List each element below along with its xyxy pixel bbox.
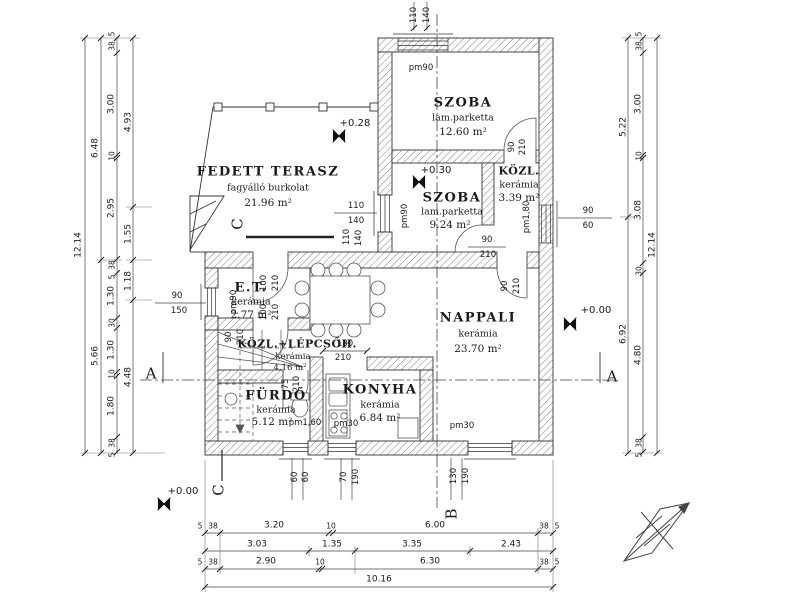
dim-label: 30 bbox=[108, 318, 116, 328]
room-finish: kerámia bbox=[275, 353, 310, 362]
dim-label: 4.80 bbox=[635, 345, 644, 365]
dim-label: 10 bbox=[326, 522, 336, 530]
room-name-nappali: NAPPALI bbox=[440, 312, 516, 325]
window-size-label: 140 bbox=[348, 217, 364, 226]
dim-label: 6.00 bbox=[425, 522, 445, 531]
dim-label: 3.08 bbox=[635, 200, 644, 220]
room-finish: kerámia bbox=[256, 405, 295, 415]
door-size-label: 210 bbox=[480, 251, 496, 260]
door-size-label: 210 bbox=[513, 278, 522, 294]
room-area: 21.96 m² bbox=[244, 198, 292, 209]
room-finish: kerámia bbox=[458, 329, 497, 339]
dim-label: 12.14 bbox=[649, 232, 658, 258]
dim-label: 10 bbox=[635, 151, 643, 161]
parapet-label: pm90 bbox=[230, 290, 239, 315]
dim-label: 4.48 bbox=[125, 367, 134, 387]
parapet-label: pm30 bbox=[334, 420, 359, 429]
door-size-label: 90 bbox=[482, 236, 493, 245]
elevation-label: +0.28 bbox=[340, 119, 371, 129]
benchmark-icon bbox=[557, 311, 582, 336]
section-label-b: B bbox=[445, 508, 460, 519]
dim-label: 10 bbox=[108, 151, 116, 161]
dim-label: 4.93 bbox=[125, 112, 134, 132]
dim-label: 2.95 bbox=[108, 198, 117, 218]
room-name-kozl: KÖZL. bbox=[499, 166, 540, 177]
window-size-label: 190 bbox=[352, 469, 361, 485]
room-finish: kerámia bbox=[499, 180, 538, 190]
room-area: 12.60 m² bbox=[439, 127, 487, 138]
door-size-label: 90 bbox=[508, 142, 517, 153]
dim-label: 6.92 bbox=[620, 324, 629, 344]
dim-label: 5 bbox=[635, 453, 643, 458]
window-size-label: 90 bbox=[172, 292, 183, 301]
room-finish: fagyálló burkolat bbox=[227, 183, 309, 193]
dim-label: 1.55 bbox=[125, 224, 134, 244]
door-size-label: 210 bbox=[293, 376, 302, 392]
room-finish: lam.parketta bbox=[432, 113, 494, 123]
section-label-a: A bbox=[146, 367, 157, 382]
dim-label: 5 bbox=[198, 522, 203, 530]
dim-label: 38 bbox=[108, 438, 116, 448]
elevation-label: +0.00 bbox=[168, 487, 199, 497]
dim-label: 38 bbox=[635, 438, 643, 448]
room-area: 3.39 m² bbox=[499, 193, 540, 204]
window-size-label: 130 bbox=[450, 468, 459, 484]
window-size-label: 60 bbox=[302, 472, 311, 483]
room-name-terasz: FEDETT TERASZ bbox=[197, 166, 340, 179]
dim-label: 5 bbox=[555, 558, 560, 566]
dim-label: 38 bbox=[108, 41, 116, 51]
room-area: 9.24 m² bbox=[430, 220, 471, 231]
dim-label: 2.43 bbox=[501, 541, 521, 550]
door-size-label: 210 bbox=[272, 304, 281, 320]
dim-label: 3.00 bbox=[108, 94, 117, 114]
north-arrow-icon bbox=[624, 503, 689, 561]
door-size-label: 90 bbox=[501, 281, 510, 292]
dim-label: 12.14 bbox=[75, 232, 84, 258]
dim-label: 5.66 bbox=[92, 346, 101, 366]
window-size-label: 150 bbox=[171, 307, 187, 316]
section-label-c: C bbox=[231, 218, 246, 229]
dim-label: 30 bbox=[635, 266, 643, 276]
section-label-c: C bbox=[212, 484, 227, 495]
room-finish: lam.parketta bbox=[421, 207, 483, 217]
window-size-label: 70 bbox=[340, 472, 349, 483]
room-finish: kerámia bbox=[360, 400, 399, 410]
dim-label: 110 bbox=[410, 7, 419, 23]
door-size-label: 75 bbox=[282, 379, 291, 390]
door-size-label: 210 bbox=[519, 139, 528, 155]
room-name-szoba2: SZOBA bbox=[423, 192, 482, 205]
door-size-label: 100 bbox=[260, 304, 269, 320]
dim-label: 5 bbox=[108, 275, 116, 280]
dim-label: 3.35 bbox=[402, 541, 422, 550]
dim-label: 140 bbox=[423, 7, 432, 23]
dim-label: 5 bbox=[198, 558, 203, 566]
window-size-label: 90 bbox=[583, 207, 594, 216]
window-size-label: 110 bbox=[343, 229, 352, 245]
room-area: 4.16 m² bbox=[273, 364, 306, 373]
dim-label: 5 bbox=[108, 32, 116, 37]
door-size-label: 210 bbox=[272, 275, 281, 291]
elevation-label: +0.00 bbox=[581, 306, 612, 316]
door-size-label: 130 bbox=[337, 340, 353, 349]
dim-label: 1.30 bbox=[108, 340, 117, 360]
floor-plan: FEDETT TERASZ fagyálló burkolat 21.96 m²… bbox=[0, 0, 800, 600]
dim-label: 2.90 bbox=[256, 558, 276, 567]
dim-label: 1.30 bbox=[108, 286, 117, 306]
elevation-label: +0.30 bbox=[421, 166, 452, 176]
window-size-label: 190 bbox=[462, 468, 471, 484]
section-label-a: A bbox=[607, 370, 618, 385]
dim-label: 5 bbox=[555, 522, 560, 530]
dim-label: 3.03 bbox=[247, 541, 267, 550]
dim-label: 1.35 bbox=[322, 541, 342, 550]
door-size-label: 210 bbox=[237, 329, 246, 345]
dim-label: 38 bbox=[208, 522, 218, 530]
dim-label: 38 bbox=[539, 558, 549, 566]
dim-label: 1.80 bbox=[108, 396, 117, 416]
dim-label: 10 bbox=[315, 558, 325, 566]
room-name-szoba1: SZOBA bbox=[434, 97, 493, 110]
window-size-label: 110 bbox=[348, 202, 364, 211]
floor-plan-drawing bbox=[0, 0, 800, 600]
room-name-konyha: KONYHA bbox=[343, 384, 418, 397]
parapet-label: pm1,80 bbox=[523, 201, 532, 234]
window-size-label: 60 bbox=[583, 222, 594, 231]
parapet-label: pm1,60 bbox=[289, 419, 322, 428]
dim-label: 10.16 bbox=[366, 576, 392, 585]
parapet-label: pm90 bbox=[401, 204, 410, 229]
parapet-label: pm30 bbox=[450, 422, 475, 431]
dim-label: 5 bbox=[108, 453, 116, 458]
room-area: 6.84 m² bbox=[360, 413, 401, 424]
dim-label: 38 bbox=[108, 260, 116, 270]
dim-label: 38 bbox=[635, 41, 643, 51]
dim-label: 3.00 bbox=[635, 94, 644, 114]
room-area: 5.12 m² bbox=[252, 417, 293, 428]
dim-label: 5 bbox=[635, 32, 643, 37]
dim-label: 1.18 bbox=[125, 271, 134, 291]
parapet-label: pm90 bbox=[409, 64, 434, 73]
door-size-label: 90 bbox=[225, 332, 234, 343]
dim-label: 38 bbox=[208, 558, 218, 566]
dim-label: 38 bbox=[539, 522, 549, 530]
dim-label: 6.30 bbox=[420, 558, 440, 567]
dim-label: 3.20 bbox=[264, 522, 284, 531]
dim-label: 10 bbox=[108, 369, 116, 379]
window-size-label: 140 bbox=[355, 230, 364, 246]
dim-label: 5.22 bbox=[620, 117, 629, 137]
dim-label: 6.48 bbox=[92, 138, 101, 158]
door-size-label: 100 bbox=[260, 275, 269, 291]
door-size-label: 210 bbox=[335, 354, 351, 363]
window-size-label: 60 bbox=[291, 472, 300, 483]
room-area: 23.70 m² bbox=[454, 344, 502, 355]
